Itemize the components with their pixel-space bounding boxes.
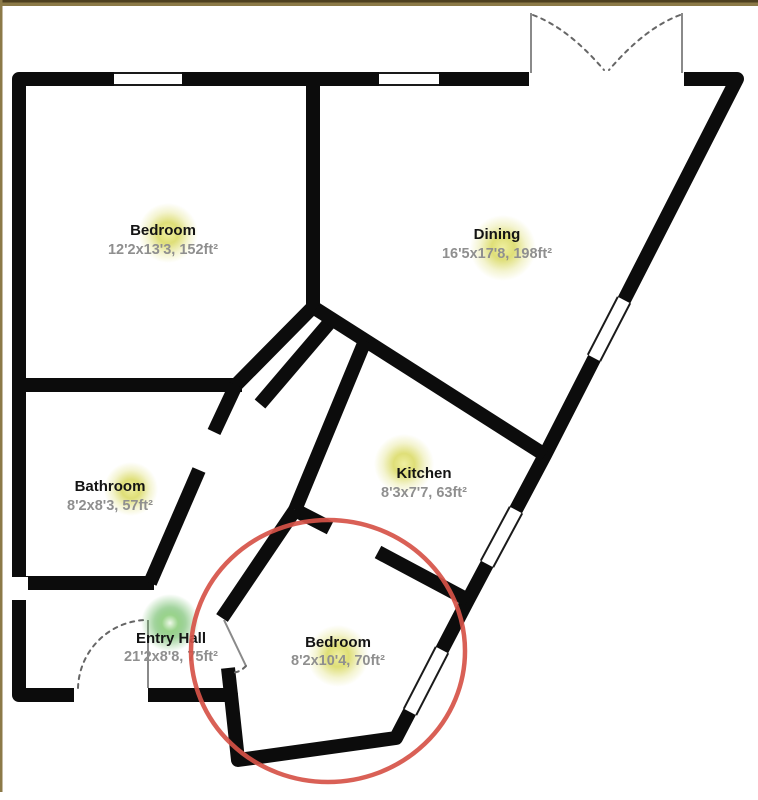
frame-edge-top: [0, 3, 758, 7]
room-name: Bedroom: [305, 634, 371, 651]
room-dims: 21'2x8'8, 75ft²: [124, 649, 218, 665]
room-name: Dining: [474, 226, 521, 243]
wall-bedroom2-west-jamb: [228, 668, 231, 695]
room-dims: 8'2x8'3, 57ft²: [67, 498, 153, 514]
room-dims: 16'5x17'8, 198ft²: [442, 246, 552, 262]
room-dims: 8'3x7'7, 63ft²: [381, 485, 467, 501]
frame-edge-top-dark: [0, 0, 758, 3]
room-name: Bedroom: [130, 222, 196, 239]
room-name: Kitchen: [396, 465, 451, 482]
window-bedroom1: [114, 73, 182, 85]
room-dims: 8'2x10'4, 70ft²: [291, 653, 385, 669]
frame-edge-left: [0, 0, 3, 792]
window-dining-top: [379, 73, 439, 85]
room-dims: 12'2x13'3, 152ft²: [108, 242, 218, 258]
floor-plan-svg: Bedroom 12'2x13'3, 152ft² Dining 16'5x17…: [0, 0, 758, 800]
floor-plan-image: Bedroom 12'2x13'3, 152ft² Dining 16'5x17…: [0, 0, 758, 800]
left-wall-notch: [11, 577, 28, 600]
room-name: Bathroom: [75, 478, 146, 495]
plan-background: [0, 0, 758, 800]
room-name: Entry Hall: [136, 630, 206, 647]
